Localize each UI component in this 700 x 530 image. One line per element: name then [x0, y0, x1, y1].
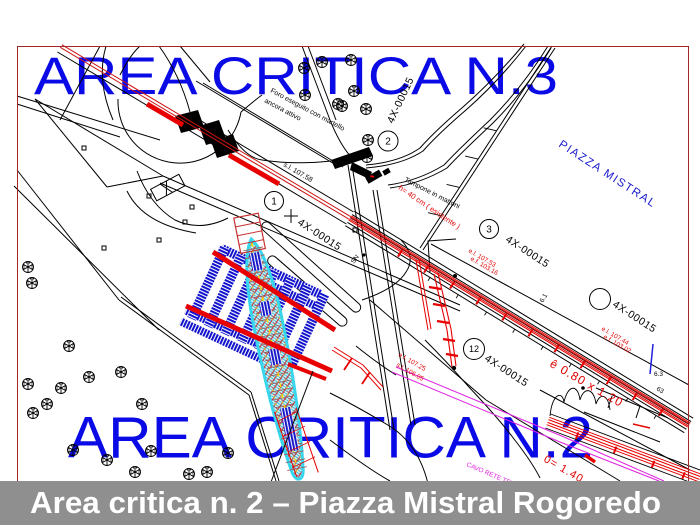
svg-text:2: 2: [385, 137, 391, 148]
svg-text:Area critica n. 2 – Piazza Mis: Area critica n. 2 – Piazza Mistral Rogor…: [30, 485, 661, 520]
svg-text:AREA CRITICA N.2: AREA CRITICA N.2: [68, 406, 593, 471]
svg-text:1: 1: [271, 197, 277, 208]
svg-text:12: 12: [469, 344, 479, 354]
svg-text:6.3: 6.3: [654, 371, 663, 378]
svg-text:3: 3: [486, 225, 492, 236]
